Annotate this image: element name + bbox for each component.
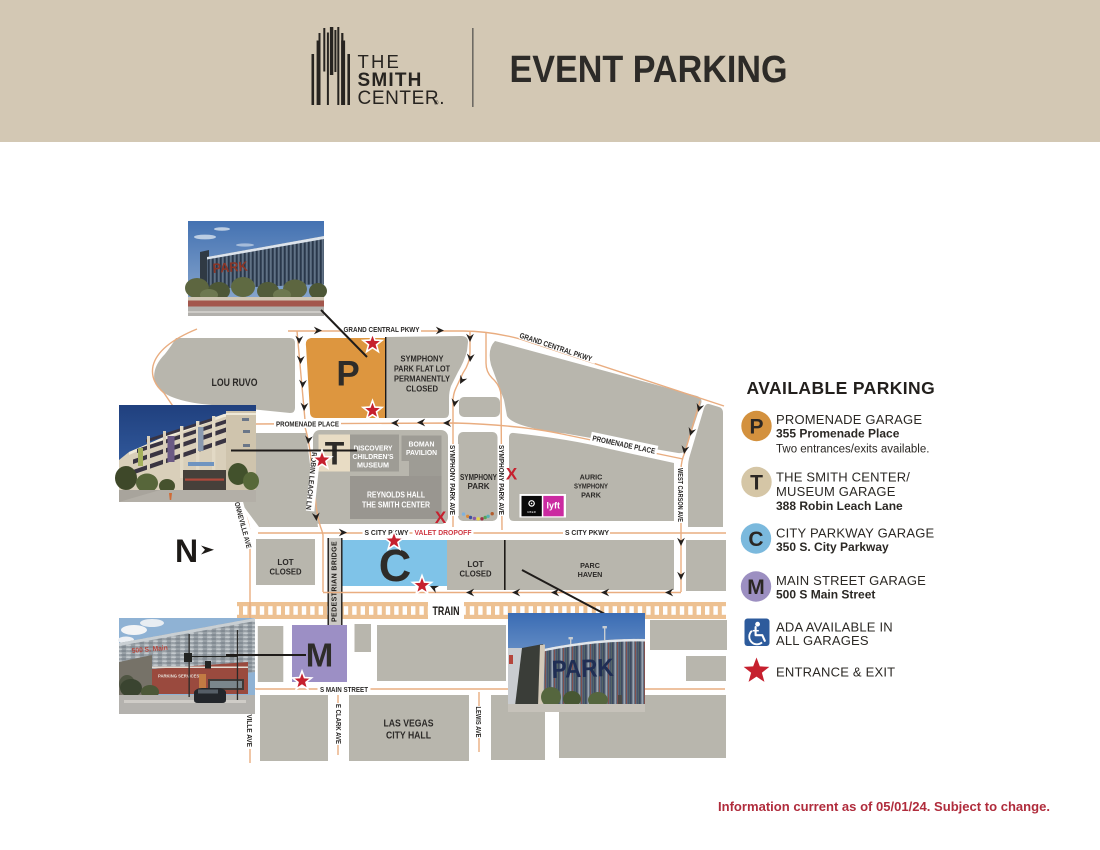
svg-text:M: M (747, 576, 765, 599)
svg-text:REYNOLDS HALL: REYNOLDS HALL (367, 490, 425, 500)
svg-text:WEST CARSON AVE: WEST CARSON AVE (676, 468, 685, 522)
svg-text:CENTER.: CENTER. (358, 88, 446, 109)
svg-text:500 S Main Street: 500 S Main Street (776, 588, 875, 602)
svg-text:ALL GARAGES: ALL GARAGES (776, 633, 869, 648)
svg-text:SYMPHONY: SYMPHONY (460, 473, 498, 482)
svg-text:355 Promenade Place: 355 Promenade Place (776, 427, 900, 441)
svg-text:AVAILABLE PARKING: AVAILABLE PARKING (747, 378, 936, 398)
svg-text:PROMENADE GARAGE: PROMENADE GARAGE (776, 412, 922, 427)
svg-text:MUSEUM: MUSEUM (357, 461, 389, 470)
svg-text:GRAND CENTRAL PKWY: GRAND CENTRAL PKWY (344, 325, 420, 334)
svg-text:PROMENADE PLACE: PROMENADE PLACE (276, 420, 339, 429)
svg-text:SYMPHONY: SYMPHONY (401, 355, 445, 364)
svg-text:LOU RUVO: LOU RUVO (212, 377, 258, 389)
svg-text:UBER: UBER (527, 510, 536, 514)
svg-text:MUSEUM GARAGE: MUSEUM GARAGE (776, 484, 896, 499)
svg-text:LOT: LOT (467, 560, 483, 569)
svg-text:PARK: PARK (212, 259, 248, 276)
svg-text:PARKING SERVICES: PARKING SERVICES (158, 674, 199, 679)
svg-text:®: ® (434, 100, 439, 107)
svg-text:Information current as of 05/0: Information current as of 05/01/24. Subj… (718, 799, 1050, 814)
svg-text:VALET DROPOFF: VALET DROPOFF (415, 528, 473, 537)
svg-text:350 S. City Parkway: 350 S. City Parkway (776, 540, 889, 554)
svg-text:MAIN STREET GARAGE: MAIN STREET GARAGE (776, 573, 926, 588)
svg-text:SYMPHONY PARK AVE: SYMPHONY PARK AVE (448, 445, 457, 515)
svg-text:PARK: PARK (551, 654, 614, 684)
svg-text:PERMANENTLY: PERMANENTLY (394, 375, 451, 384)
svg-text:CITY PARKWAY GARAGE: CITY PARKWAY GARAGE (776, 526, 935, 541)
svg-text:X: X (506, 465, 518, 484)
svg-text:X: X (435, 508, 447, 527)
svg-text:LAS VEGAS: LAS VEGAS (384, 719, 434, 730)
svg-text:THE: THE (358, 51, 402, 72)
svg-text:LEWIS AVE: LEWIS AVE (474, 707, 483, 738)
svg-text:CITY HALL: CITY HALL (386, 731, 431, 742)
svg-text:PAVILION: PAVILION (406, 448, 437, 457)
svg-text:CLOSED: CLOSED (460, 570, 492, 579)
svg-text:PARK: PARK (467, 482, 489, 491)
svg-text:SYMPHONY: SYMPHONY (574, 482, 608, 491)
svg-text:M: M (306, 637, 334, 674)
svg-text:Two entrances/exits available.: Two entrances/exits available. (776, 444, 929, 456)
svg-text:CLOSED: CLOSED (270, 568, 302, 577)
svg-text:S CITY PKWY: S CITY PKWY (565, 528, 609, 537)
svg-text:PARK FLAT LOT: PARK FLAT LOT (394, 365, 450, 374)
svg-text:lyft: lyft (547, 501, 561, 511)
svg-text:AURIC: AURIC (580, 473, 603, 482)
svg-text:S CITY PKWY: S CITY PKWY (365, 528, 409, 537)
svg-text:THE SMITH CENTER/: THE SMITH CENTER/ (776, 470, 910, 485)
svg-text:C: C (379, 540, 412, 591)
svg-text:LOT: LOT (277, 558, 293, 567)
svg-text:S MAIN STREET: S MAIN STREET (320, 685, 369, 694)
svg-text:C: C (748, 528, 763, 551)
svg-text:HAVEN: HAVEN (578, 570, 603, 579)
svg-text:N: N (175, 533, 198, 569)
svg-text:CLOSED: CLOSED (406, 385, 438, 394)
svg-text:P: P (749, 416, 763, 439)
svg-text:THE SMITH CENTER: THE SMITH CENTER (362, 500, 431, 510)
svg-text:PARK: PARK (581, 491, 602, 500)
svg-text:EVENT PARKING: EVENT PARKING (510, 49, 788, 91)
svg-text:TRAIN: TRAIN (433, 606, 460, 618)
svg-text:P: P (336, 355, 359, 394)
svg-text:PEDESTRIAN BRIDGE: PEDESTRIAN BRIDGE (332, 541, 339, 622)
svg-text:PARC: PARC (580, 561, 600, 570)
svg-text:E CLARK AVE: E CLARK AVE (334, 704, 343, 744)
svg-text:T: T (750, 472, 763, 495)
svg-text:388 Robin Leach Lane: 388 Robin Leach Lane (776, 499, 903, 513)
svg-text:ENTRANCE & EXIT: ENTRANCE & EXIT (776, 665, 895, 680)
